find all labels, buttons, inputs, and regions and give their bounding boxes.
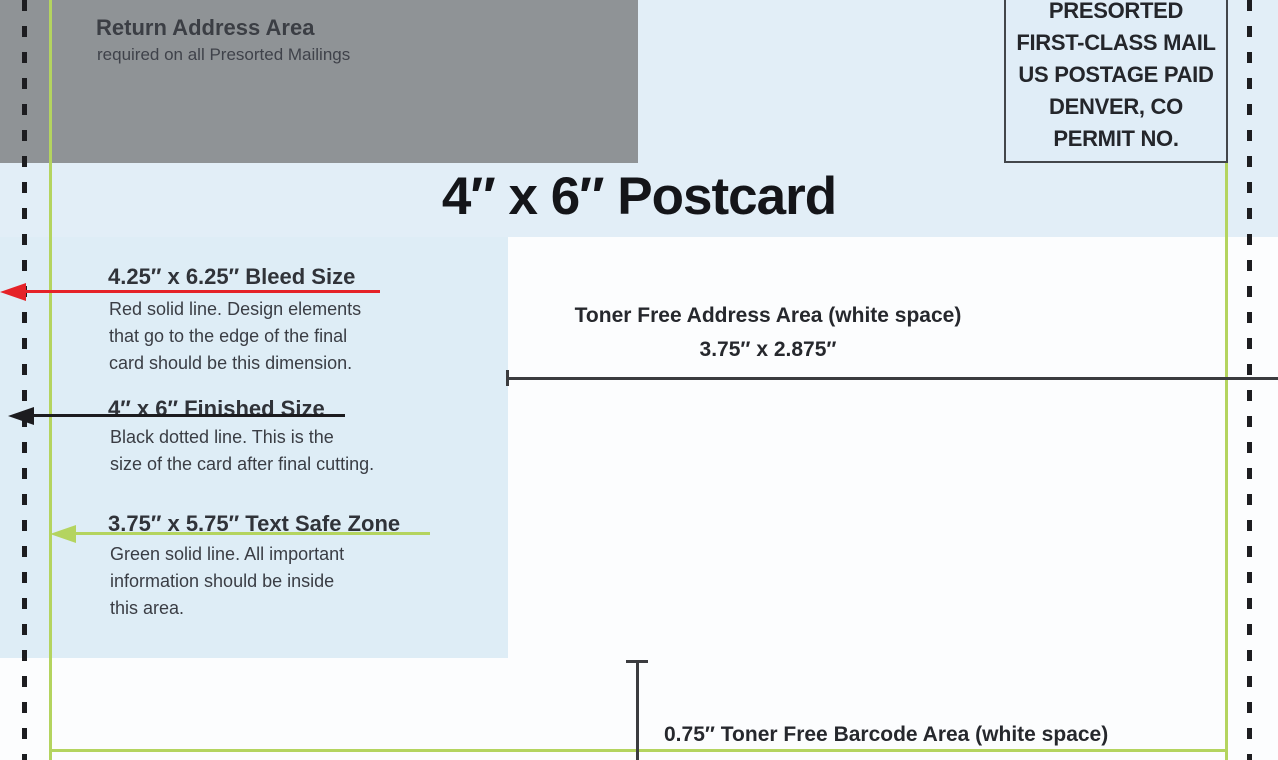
bleed-size-underline [14,290,380,293]
barcode-area-label: 0.75″ Toner Free Barcode Area (white spa… [664,723,1108,747]
page-title: 4″ x 6″ Postcard [0,166,1278,227]
postcard-template-diagram: Return Address Area required on all Pres… [0,0,1278,760]
safe-zone-desc-line: this area. [110,595,344,622]
finished-size-underline [22,414,345,417]
bleed-desc-line: Red solid line. Design elements [109,296,361,323]
return-address-subtitle: required on all Presorted Mailings [97,45,350,65]
safe-zone-arrow-icon [50,525,76,543]
safe-zone-desc-line: information should be inside [110,568,344,595]
address-area-label: Toner Free Address Area (white space) [508,304,1028,328]
safe-zone-underline [62,532,430,535]
indicia-line-presorted: PRESORTED [1006,0,1226,27]
barcode-area-dimension-line [636,661,639,760]
postage-indicia-box: PRESORTED FIRST-CLASS MAIL US POSTAGE PA… [1004,0,1228,163]
finished-arrow-icon [8,407,34,425]
bleed-arrow-icon [0,283,26,301]
indicia-line-first-class: FIRST-CLASS MAIL [1006,27,1226,59]
bleed-size-heading: 4.25″ x 6.25″ Bleed Size [108,264,355,290]
finished-desc-line: Black dotted line. This is the [110,424,374,451]
indicia-line-permit: PERMIT NO. [1006,123,1226,155]
return-address-title: Return Address Area [96,15,314,41]
bleed-desc-line: card should be this dimension. [109,350,361,377]
finished-size-line-right [1247,0,1252,760]
text-safe-zone-line-left [49,0,52,760]
address-area-dimensions: 3.75″ x 2.875″ [508,338,1028,362]
finished-size-description: Black dotted line. This is the size of t… [110,424,374,478]
indicia-line-city: DENVER, CO [1006,91,1226,123]
bleed-size-description: Red solid line. Design elements that go … [109,296,361,377]
indicia-line-postage-paid: US POSTAGE PAID [1006,59,1226,91]
address-area-dimension-line [506,377,1278,380]
safe-zone-description: Green solid line. All important informat… [110,541,344,622]
finished-size-line-left [22,0,27,760]
bleed-desc-line: that go to the edge of the final [109,323,361,350]
finished-desc-line: size of the card after final cutting. [110,451,374,478]
safe-zone-desc-line: Green solid line. All important [110,541,344,568]
finished-size-heading: 4″ x 6″ Finished Size [108,396,325,422]
